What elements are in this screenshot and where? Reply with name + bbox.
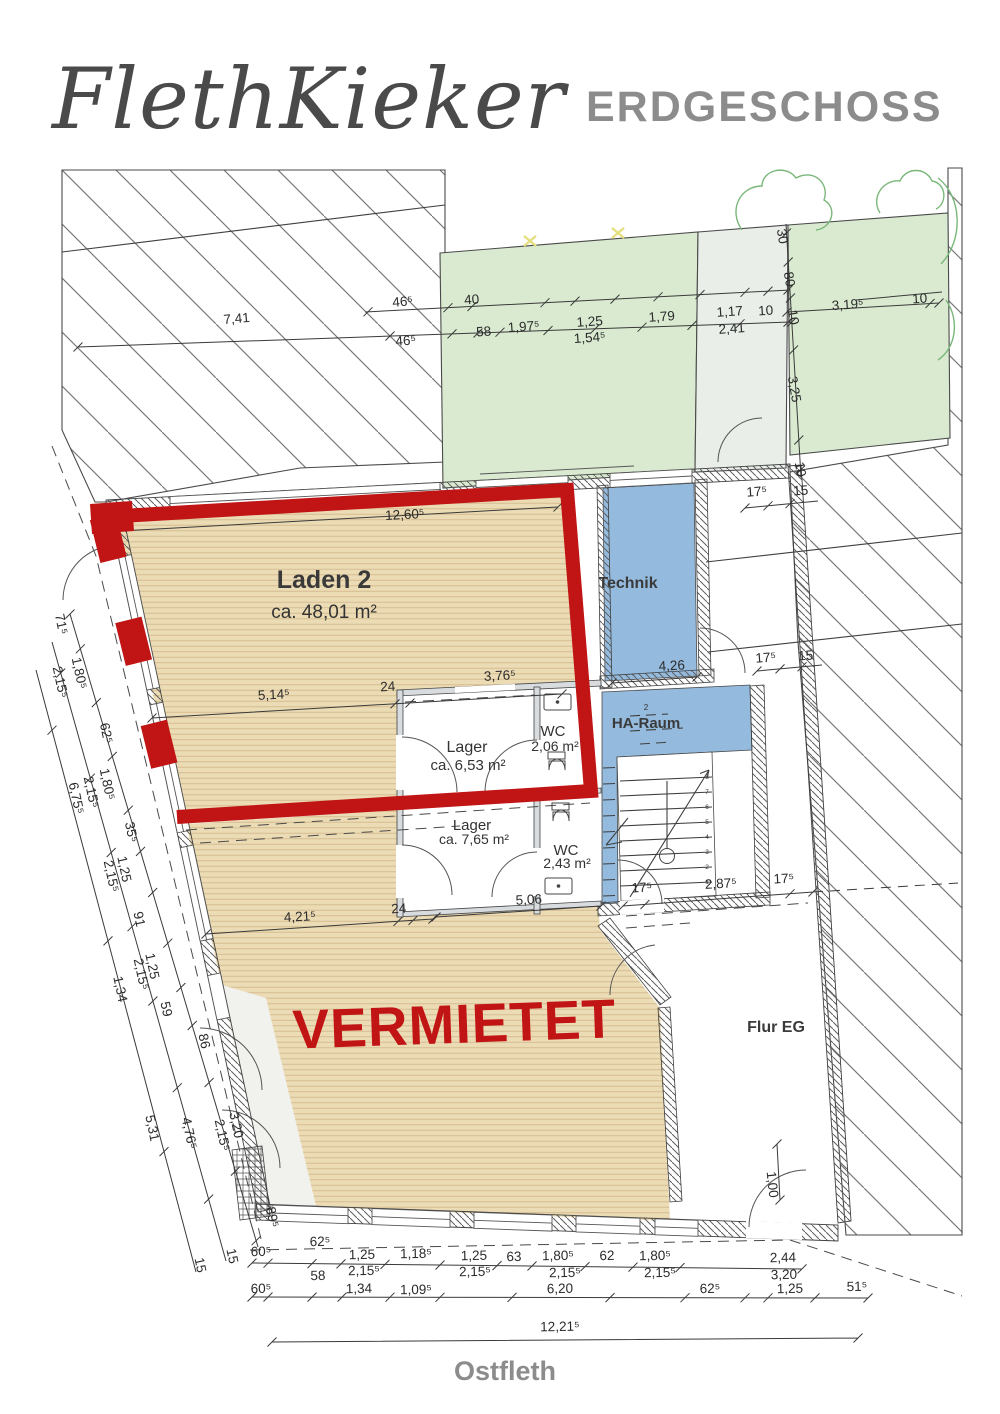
dimension-label: 17⁵: [773, 870, 794, 886]
tree-outline: [877, 171, 944, 214]
dimension-label: 5,06: [515, 891, 542, 907]
haraum-tag: 2: [644, 703, 649, 712]
dimension-label: 1,09⁵: [400, 1282, 432, 1298]
dimension-label: 15: [793, 483, 809, 499]
dimension-label: 4,21⁵: [283, 908, 316, 925]
door-opening: [396, 845, 404, 898]
flur-name: Flur EG: [747, 1019, 805, 1036]
dimension-label: 2,15⁵: [549, 1265, 581, 1281]
dimension-label: 24: [380, 679, 396, 695]
dimension-label: 60⁵: [250, 1244, 271, 1259]
dimension-label: 1,17: [716, 303, 743, 320]
rear-passage: [695, 225, 788, 472]
dimension-label: 62⁵: [699, 1281, 720, 1296]
door-opening: [533, 848, 541, 896]
haraum-name: HA-Raum: [612, 715, 680, 732]
dimension-label: 3,76⁵: [483, 667, 516, 684]
dimension-label: 1,54⁵: [573, 329, 606, 346]
dimension-label: 5,31: [142, 1114, 162, 1143]
dimension-label: 17⁵: [746, 483, 768, 499]
dimension-label: 10: [785, 309, 802, 326]
dimension-label: 4,26: [658, 657, 685, 673]
dimension-label: 1,34: [346, 1281, 373, 1296]
floor-plan: FlethKieker ERDGESCHOSS: [0, 0, 1000, 1414]
lager2-area: ca. 7,65 m²: [439, 831, 509, 847]
dimension-label: 24: [391, 901, 407, 917]
dimension-label: 1,34: [110, 975, 130, 1004]
stair-step-number: 6: [705, 804, 709, 811]
dimension-label: 35⁵: [122, 820, 141, 843]
wc1-area: 2,06 m²: [531, 738, 579, 754]
dimension-label: 2,44: [770, 1250, 797, 1265]
dimension-label: 2,15⁵: [348, 1263, 380, 1279]
dimension-label: 40: [464, 292, 480, 308]
dimension-label: 51⁵: [846, 1279, 867, 1294]
dimension-label: 10: [758, 303, 774, 319]
street-label: Ostfleth: [454, 1356, 556, 1386]
dimension-label: 1,80⁵: [542, 1248, 574, 1264]
dimension-label: 10: [912, 291, 928, 307]
dimension-label: 2,15⁵: [644, 1265, 676, 1281]
dimension-label: 71⁵: [52, 612, 71, 635]
dimension-label: 15: [798, 648, 814, 664]
stair-step-number: 3: [705, 849, 709, 856]
dimension-label: 1,80⁵: [69, 656, 90, 690]
garden-left: [440, 232, 698, 488]
floor-label: ERDGESCHOSS: [586, 83, 943, 131]
wc2-area: 2,43 m²: [543, 855, 591, 871]
dimension-label: 1,79: [648, 308, 675, 325]
dimension-label: 3,25: [785, 375, 804, 403]
building-floors: [112, 483, 752, 1221]
dimension-label: 59: [158, 1000, 176, 1018]
dimension-label: 12,60⁵: [385, 506, 425, 523]
dimension-label: 15: [224, 1247, 242, 1265]
dimension-label: 12,21⁵: [540, 1319, 580, 1335]
stair-step-number: 4: [705, 834, 709, 841]
dimension-label: 89⁵: [263, 1205, 282, 1228]
dimension-label: 2,41: [718, 320, 745, 337]
lager1-name: Lager: [447, 739, 489, 756]
dimension-label: 17⁵: [755, 649, 777, 665]
dimension-label: 1,80⁵: [639, 1248, 671, 1264]
lager1-area: ca. 6,53 m²: [430, 757, 505, 774]
stair-step-number: 5: [705, 819, 709, 826]
dimension-label: 62⁵: [97, 721, 116, 744]
dimension-label: 1,25: [777, 1281, 804, 1296]
stair-step-number: 2: [705, 864, 709, 871]
dimension-label: 5,14⁵: [257, 686, 290, 703]
dimension-label: 2,15⁵: [50, 665, 71, 699]
door-opening-exit: [746, 1221, 802, 1240]
garden-right: [788, 213, 950, 455]
highlight-corner-block: [90, 501, 134, 534]
dimension-label: 10: [792, 461, 809, 478]
laden2-name: Laden 2: [277, 566, 371, 594]
dimension-label: 46⁵: [395, 332, 417, 348]
dimension-label: 2,15⁵: [459, 1264, 491, 1280]
wall-stairs-right: [750, 685, 770, 898]
dimension-label: 62⁵: [309, 1234, 330, 1249]
tree-outline: [736, 170, 832, 230]
dimension-label: 1,25: [576, 313, 603, 330]
dimension-label: 15: [192, 1256, 210, 1274]
dimension-label: 7,41: [223, 310, 250, 327]
dimension-label: 86: [196, 1032, 214, 1050]
dimension-label: 62: [599, 1248, 614, 1263]
dimension-label: 63: [506, 1249, 521, 1264]
laden2-area: ca. 48,01 m²: [271, 602, 377, 623]
stair-step-number: 7: [705, 789, 709, 796]
dimension-label: 30: [774, 228, 791, 245]
status-vermietet: VERMIETET: [291, 987, 617, 1060]
dimension-label: 1,25: [349, 1247, 376, 1262]
dimension-label: 58: [310, 1268, 325, 1283]
header: FlethKieker ERDGESCHOSS: [50, 50, 943, 148]
dimension-label: 1,00: [764, 1171, 782, 1199]
dimension-label: 60⁵: [250, 1281, 271, 1296]
technik-name: Technik: [598, 575, 657, 592]
dimension-label: 80: [781, 271, 798, 288]
page-title: FlethKieker: [50, 50, 570, 148]
stair-step-number: 8: [705, 774, 709, 781]
dimension-label: 1,18⁵: [400, 1246, 432, 1262]
dimension-label: 58: [476, 324, 492, 340]
dimension-label: 1,25: [461, 1248, 488, 1263]
dimension-label: 3,20: [771, 1267, 798, 1282]
dimension-label: 1,97⁵: [507, 318, 540, 335]
dimension-label: 17⁵: [631, 879, 652, 895]
wall-technik-right: [695, 479, 711, 676]
door-opening: [396, 735, 404, 790]
dimension-label: 3,19⁵: [831, 296, 864, 313]
dimension-label: 4,76⁵: [179, 1116, 200, 1150]
dimension-label: 2,87⁵: [704, 875, 737, 892]
dimension-label: 6,20: [547, 1281, 574, 1296]
dimension-label: 46⁵: [392, 293, 414, 310]
dimension-label: 91: [131, 910, 149, 928]
